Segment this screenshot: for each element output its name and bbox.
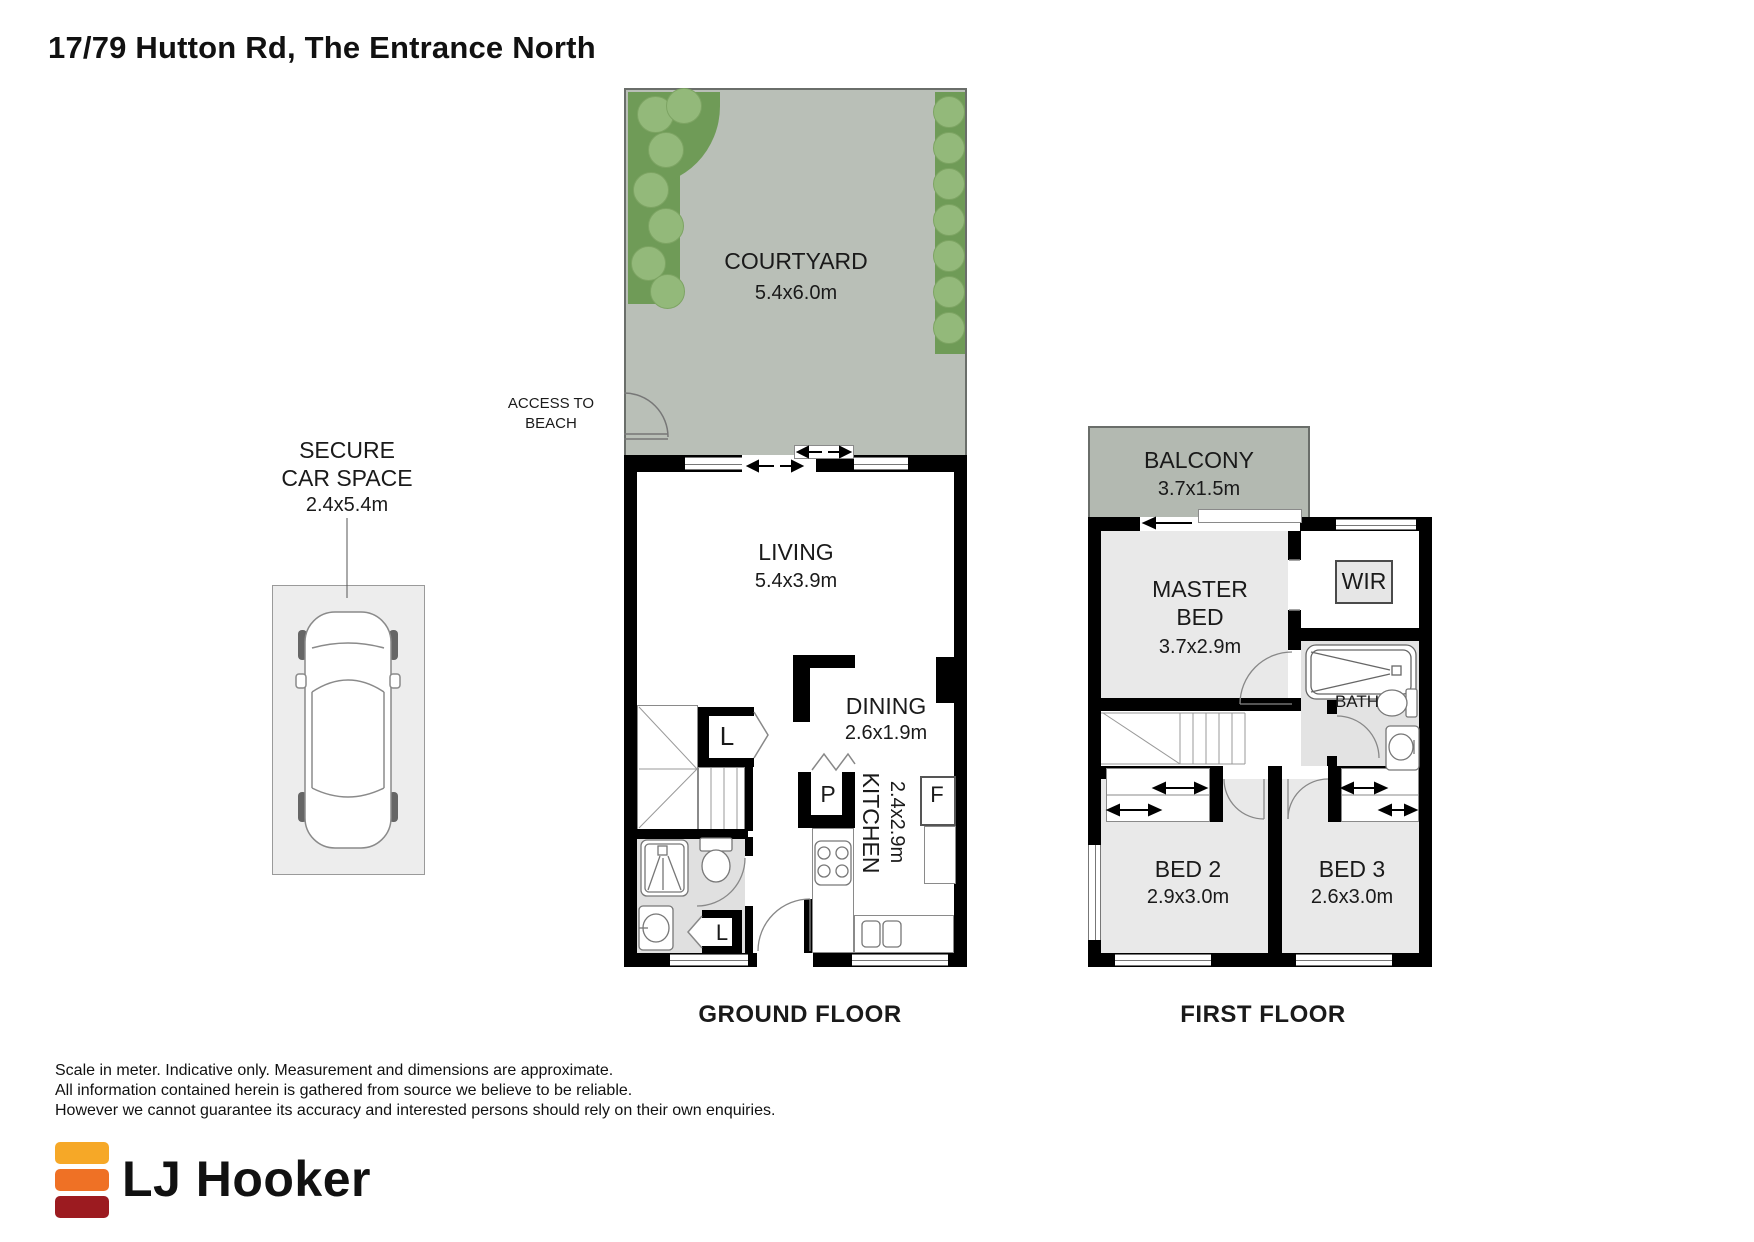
bed3-door-opening: [1282, 766, 1328, 779]
courtyard-label: COURTYARD: [646, 249, 946, 274]
window: [852, 954, 948, 966]
disclaimer-line2: All information contained herein is gath…: [55, 1082, 632, 1100]
disclaimer-line1: Scale in meter. Indicative only. Measure…: [55, 1062, 613, 1080]
bush-icon: [648, 132, 684, 168]
disclaimer-line3: However we cannot guarantee its accuracy…: [55, 1102, 775, 1120]
floorplan-page: 17/79 Hutton Rd, The Entrance North: [0, 0, 1754, 1242]
window: [1296, 954, 1392, 966]
bed3-label: BED 3: [1202, 857, 1502, 882]
living-label: LIVING: [646, 540, 946, 565]
brand-logo-text: LJ Hooker: [122, 1150, 371, 1208]
bush-icon: [666, 88, 702, 124]
balcony-dims: 3.7x1.5m: [1049, 478, 1349, 500]
car-space-dims: 2.4x5.4m: [247, 494, 447, 516]
robe-stub: [1328, 766, 1341, 822]
wall-under-stairs: [637, 829, 748, 839]
bed3-dims: 2.6x3.0m: [1202, 886, 1502, 908]
bush-icon: [633, 172, 669, 208]
ground-floor-caption: GROUND FLOOR: [650, 1002, 950, 1028]
kitchen-bench-bottom: [854, 915, 954, 953]
balcony-door-panel: [1198, 509, 1302, 523]
balcony-label: BALCONY: [1049, 448, 1349, 473]
robe-stub: [1210, 766, 1223, 822]
stair-treads-box: [698, 767, 745, 830]
bush-icon: [933, 132, 965, 164]
bathroom-door-opening: [745, 856, 753, 906]
stair-winder-box: [637, 705, 698, 830]
logo-bar-orange: [55, 1169, 109, 1191]
wir-label: WIR: [1334, 569, 1394, 594]
kitchen-bench-left: [812, 828, 854, 953]
living-dims: 5.4x3.9m: [646, 570, 946, 592]
bush-icon: [933, 168, 965, 200]
sliding-door-panel: [794, 445, 854, 459]
window: [685, 457, 742, 470]
first-floor-caption: FIRST FLOOR: [1113, 1002, 1413, 1028]
wall-master-bottom: [1088, 698, 1301, 711]
fridge-marker: F: [922, 783, 952, 807]
bush-icon: [933, 204, 965, 236]
kitchen-dims: 2.4x2.9m: [886, 762, 908, 882]
bush-icon: [648, 208, 684, 244]
wall-left: [624, 472, 637, 953]
dining-label: DINING: [834, 694, 938, 719]
pantry-marker: P: [813, 782, 843, 807]
master-bed-label1: MASTER: [1050, 577, 1350, 602]
front-door-opening: [757, 953, 813, 967]
access-to-beach-label2: BEACH: [486, 416, 616, 433]
car-space-area: [272, 585, 425, 875]
wall-right-of-stairs: [745, 767, 753, 831]
laundry-marker: L: [712, 722, 742, 751]
window: [1115, 954, 1211, 966]
bush-icon: [933, 312, 965, 344]
dining-dims: 2.6x1.9m: [832, 722, 940, 744]
page-title: 17/79 Hutton Rd, The Entrance North: [48, 30, 596, 66]
window: [1336, 519, 1416, 530]
bed2-door-opening: [1223, 766, 1268, 779]
bed3-robe: [1341, 768, 1419, 822]
logo-bar-yellow: [55, 1142, 109, 1164]
wall-niche: [936, 657, 956, 703]
pantry-wall-bottom: [798, 815, 855, 828]
car-space-label1: SECURE: [247, 438, 447, 463]
car-space-label2: CAR SPACE: [247, 466, 447, 491]
window: [670, 954, 748, 966]
linen-marker: L: [707, 921, 737, 945]
kitchen-bench-right: [924, 826, 956, 884]
window: [854, 457, 908, 470]
access-to-beach-label: ACCESS TO: [486, 396, 616, 413]
master-bed-dims: 3.7x2.9m: [1050, 636, 1350, 658]
bath-label: BATH: [1307, 693, 1407, 712]
wall-dining-horizontal: [793, 655, 855, 668]
courtyard-dims: 5.4x6.0m: [646, 282, 946, 304]
bed2-robe: [1106, 768, 1210, 822]
balcony-area: [1088, 426, 1310, 521]
master-bed-label2: BED: [1050, 605, 1350, 630]
logo-bar-red: [55, 1196, 109, 1218]
kitchen-label: KITCHEN: [859, 763, 883, 883]
bush-icon: [933, 96, 965, 128]
